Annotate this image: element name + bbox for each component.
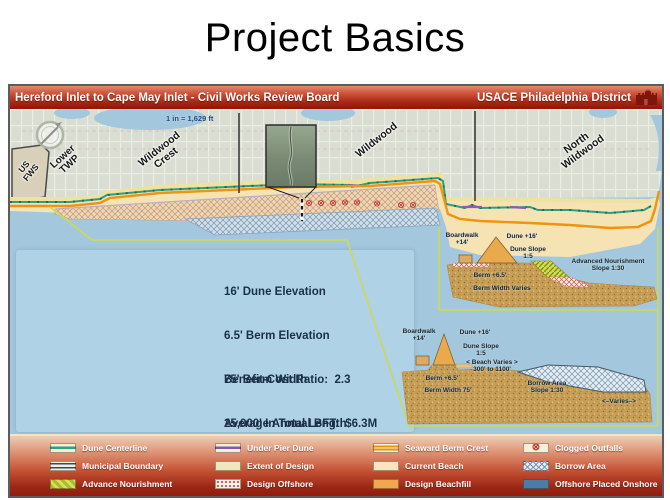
legend-item-clogged-outfalls: ⊗ Clogged Outfalls	[523, 441, 658, 455]
figure-panel: Hereford Inlet to Cape May Inlet - Civil…	[8, 84, 664, 498]
xs1-dune-label: Dune +16'	[497, 233, 547, 240]
usace-castle-icon	[635, 89, 657, 106]
legend-item-design-beachfill: Design Beachfill	[373, 477, 488, 491]
map-scale-text: 1 in = 1,629 ft	[166, 114, 213, 123]
under-pier-dune-swatch	[215, 443, 241, 453]
clogged-outfall-icon: ⊗	[523, 443, 549, 453]
legend-item-under-pier-dune: Under Pier Dune	[215, 441, 314, 455]
xs1-dune-slope-label: Dune Slope 1:5	[505, 246, 551, 260]
municipal-boundary-swatch	[50, 461, 76, 471]
legend-label: Advance Nourishment	[82, 479, 172, 489]
legend-column-1: Dune Centerline Municipal Boundary Advan…	[50, 441, 172, 491]
xs2-dune-label: Dune +16'	[450, 329, 500, 336]
legend-label: Design Offshore	[247, 479, 313, 489]
stat-bcr: Benefit-Cost Ratio: 2.3	[224, 373, 379, 388]
current-beach-swatch	[373, 461, 399, 471]
xs1-berm-width-label: Berm Width Varies	[465, 285, 539, 292]
legend-label: Dune Centerline	[82, 443, 147, 453]
legend-label: Under Pier Dune	[247, 443, 314, 453]
figure-title-right: USACE Philadelphia District	[477, 92, 631, 104]
boardwalk-shape	[416, 356, 429, 365]
legend-label: Extent of Design	[247, 461, 314, 471]
boardwalk-shape	[459, 255, 472, 263]
legend-column-2: Under Pier Dune Extent of Design Design …	[215, 441, 314, 491]
legend-item-seaward-berm-crest: Seaward Berm Crest	[373, 441, 488, 455]
dune-centerline-swatch	[50, 443, 76, 453]
advance-nourishment-swatch	[50, 479, 76, 489]
slide: Project Basics Hereford Inlet to Cape Ma…	[0, 0, 670, 500]
stat-berm-elevation: 6.5' Berm Elevation	[224, 329, 356, 344]
xs2-berm-width-label: Berm Width 75'	[416, 387, 480, 394]
xs2-borrow-area-label: Borrow Area Slope 1:30	[516, 380, 578, 394]
borrow-area-swatch	[523, 461, 549, 471]
legend-label: Municipal Boundary	[82, 461, 163, 471]
figure-header-bar: Hereford Inlet to Cape May Inlet - Civil…	[10, 86, 662, 109]
cross-section-upper: Boardwalk +14' Dune +16' Dune Slope 1:5 …	[439, 227, 662, 312]
legend-label: Seaward Berm Crest	[405, 443, 488, 453]
legend-label: Clogged Outfalls	[555, 443, 623, 453]
seaward-berm-crest-swatch	[373, 443, 399, 453]
legend-item-advance-nourishment: Advance Nourishment	[50, 477, 172, 491]
legend-item-extent-of-design: Extent of Design	[215, 459, 314, 473]
xs2-beach-varies-label: < Beach Varies > 300' to 1100'	[456, 359, 528, 373]
legend-item-design-offshore: Design Offshore	[215, 477, 314, 491]
compass-icon	[37, 122, 63, 148]
xs1-advanced-nourishment-label: Advanced Nourishment Slope 1:30	[559, 258, 657, 272]
legend-item-current-beach: Current Beach	[373, 459, 488, 473]
legend-item-municipal-boundary: Municipal Boundary	[50, 459, 172, 473]
design-offshore-swatch	[215, 479, 241, 489]
xs2-berm-label: Berm +6.5'	[418, 375, 466, 382]
stat-dune-elevation: 16' Dune Elevation	[224, 285, 356, 300]
xs1-berm-label: Berm +6.5'	[467, 272, 513, 279]
legend-item-dune-centerline: Dune Centerline	[50, 441, 172, 455]
map-legend: Dune Centerline Municipal Boundary Advan…	[10, 434, 662, 498]
legend-label: Current Beach	[405, 461, 464, 471]
cross-section-lower: Boardwalk +14' Dune +16' Dune Slope 1:5 …	[398, 320, 662, 432]
inset-aerial-photo	[266, 125, 316, 198]
legend-label: Borrow Area	[555, 461, 606, 471]
slide-title: Project Basics	[0, 16, 670, 61]
legend-column-4: ⊗ Clogged Outfalls Borrow Area Offshore …	[523, 441, 658, 491]
legend-column-3: Seaward Berm Crest Current Beach Design …	[373, 441, 488, 491]
legend-item-borrow-area: Borrow Area	[523, 459, 658, 473]
stat-annual-benefit: Average Annual BFT: $6.3M	[224, 417, 379, 432]
xs2-varies-label: <–Varies–>	[590, 398, 648, 405]
offshore-placed-onshore-swatch	[523, 479, 549, 489]
xs1-boardwalk-label: Boardwalk +14'	[441, 232, 483, 246]
design-beachfill-swatch	[373, 479, 399, 489]
xs2-boardwalk-label: Boardwalk +14'	[398, 328, 440, 342]
figure-title-left: Hereford Inlet to Cape May Inlet - Civil…	[15, 92, 339, 104]
legend-item-offshore-placed-onshore: Offshore Placed Onshore	[523, 477, 658, 491]
legend-label: Design Beachfill	[405, 479, 471, 489]
xs2-dune-slope-label: Dune Slope 1:5	[458, 343, 504, 357]
extent-of-design-swatch	[215, 461, 241, 471]
figure-title-right-group: USACE Philadelphia District	[477, 89, 657, 106]
legend-label: Offshore Placed Onshore	[555, 479, 658, 489]
